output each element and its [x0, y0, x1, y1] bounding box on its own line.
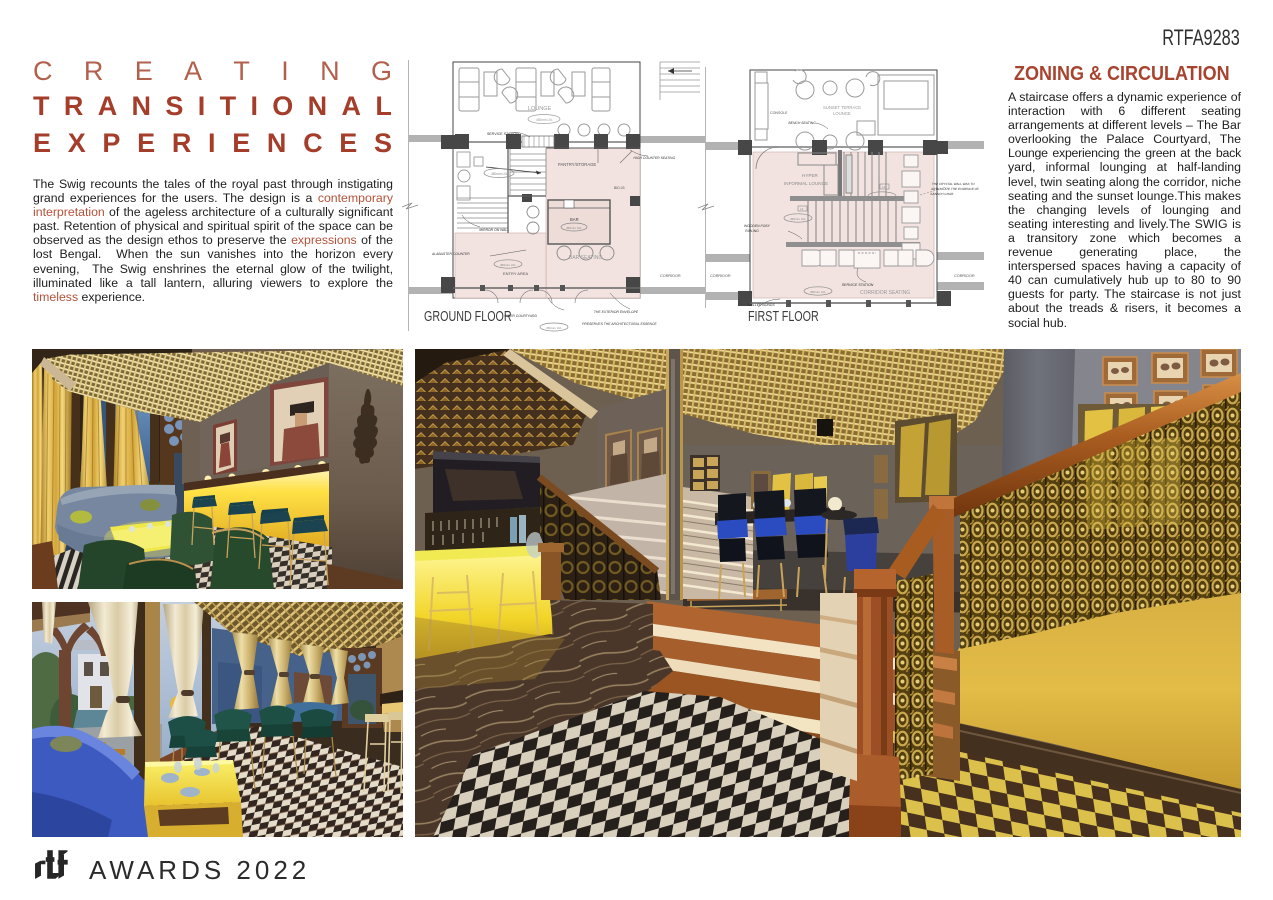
svg-text:MIRROR ON WALL: MIRROR ON WALL — [479, 228, 509, 232]
svg-text:CONSOLE: CONSOLE — [770, 111, 788, 115]
svg-text:THE EXTERIOR ENVELOPE: THE EXTERIOR ENVELOPE — [594, 310, 640, 314]
svg-text:PRESERVES THE ARCHITECTURAL ES: PRESERVES THE ARCHITECTURAL ESSENCE — [582, 322, 658, 326]
svg-text:ENTRY AREA: ENTRY AREA — [503, 271, 529, 276]
svg-text:CORRIDOR: CORRIDOR — [710, 274, 731, 278]
svg-text:ARTICULATE THE EVIDENCE OF: ARTICULATE THE EVIDENCE OF — [931, 187, 979, 191]
svg-text:BAR SEATING: BAR SEATING — [569, 255, 602, 261]
svg-text:INFORMAL LOUNGE: INFORMAL LOUNGE — [784, 181, 828, 186]
svg-text:450mm LVL: 450mm LVL — [566, 226, 582, 230]
svg-text:PANTRY/STORAGE: PANTRY/STORAGE — [558, 162, 596, 167]
svg-text:L2: L2 — [882, 185, 886, 189]
svg-text:BAR: BAR — [570, 217, 579, 222]
svg-text:450mm LVL: 450mm LVL — [536, 118, 553, 122]
svg-text:WOODEN POSY: WOODEN POSY — [744, 224, 771, 228]
svg-text:RAILING: RAILING — [745, 229, 759, 233]
svg-text:ALABASTER COUNTER: ALABASTER COUNTER — [432, 252, 471, 256]
svg-text:BENCH SEATING: BENCH SEATING — [788, 121, 816, 125]
svg-text:BID-03: BID-03 — [614, 186, 625, 190]
svg-text:450mm LVL: 450mm LVL — [810, 290, 826, 294]
svg-text:SERVICE STATION: SERVICE STATION — [841, 283, 874, 287]
svg-text:LOUNGE: LOUNGE — [833, 111, 851, 116]
svg-text:CORRIDOR: CORRIDOR — [660, 274, 681, 278]
svg-text:KANNCH GHAR: KANNCH GHAR — [930, 192, 954, 196]
svg-text:L2: L2 — [800, 207, 804, 211]
svg-text:HYPER: HYPER — [802, 173, 819, 178]
svg-text:450mm LVL: 450mm LVL — [874, 195, 890, 199]
svg-text:HIGH COUNTER SEATING: HIGH COUNTER SEATING — [633, 156, 676, 160]
svg-text:SUNSET TERRACE: SUNSET TERRACE — [823, 105, 861, 110]
svg-text:450mm LVL: 450mm LVL — [790, 217, 806, 221]
svg-text:LOUNGE: LOUNGE — [528, 106, 552, 112]
svg-text:THE CRYSTAL WALL WAS TO: THE CRYSTAL WALL WAS TO — [932, 182, 976, 186]
svg-text:450mm LVL: 450mm LVL — [491, 172, 508, 176]
svg-text:CORRIDOR: CORRIDOR — [954, 274, 975, 278]
svg-text:CORRIDOR SEATING: CORRIDOR SEATING — [860, 290, 910, 296]
svg-text:450mm LVL: 450mm LVL — [546, 326, 562, 330]
svg-text:450mm LVL: 450mm LVL — [500, 263, 516, 267]
